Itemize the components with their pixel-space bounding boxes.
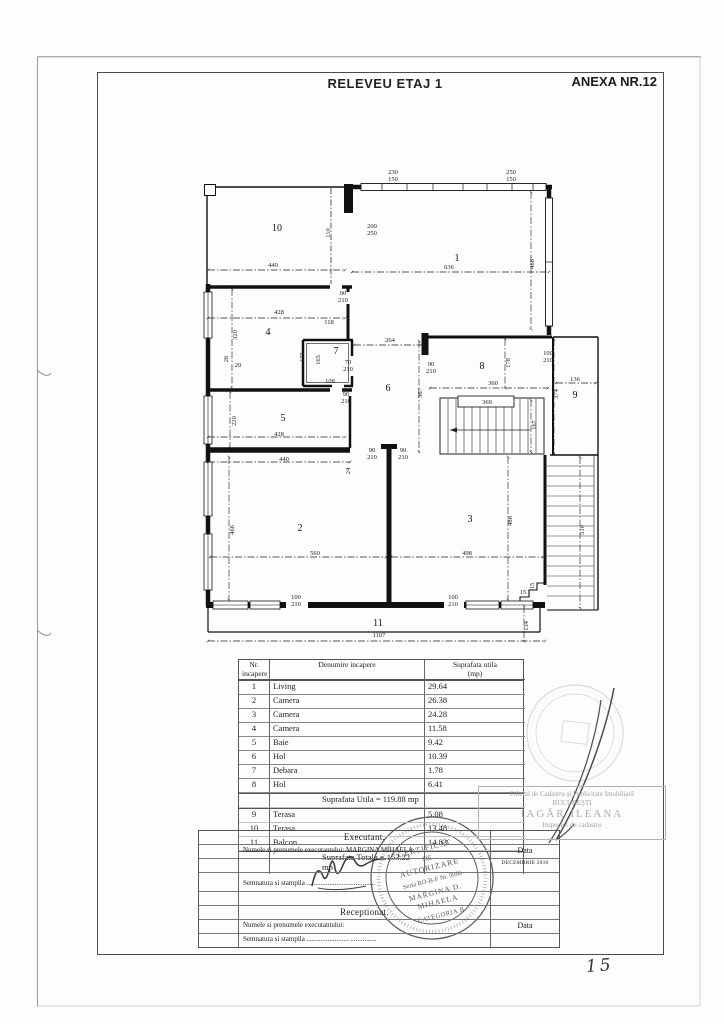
dimension-label: 20 [235,362,242,369]
ocpi-inspector-name: IAGĂR ILEANA [479,808,665,822]
dimension-label: 150 [388,176,398,183]
handwritten-page-number: 15 [585,955,614,977]
dimension-label: 136 [570,376,581,383]
area-cell-nr: 9 [239,809,270,823]
receptionat-header: Receptionat. [239,906,491,920]
dimension-label: 1107 [373,632,387,639]
dimension-label: 560 [310,550,320,557]
data-label-2: Data [491,920,559,934]
stairs-interior [440,396,544,454]
dimension-label: 100 [448,594,458,601]
dimension-label: 90 [369,447,376,454]
area-cell-area: 11.58 [425,723,525,737]
room-number: 11 [373,618,383,629]
dimension-label: 210 [426,368,436,375]
area-cell-nr: 6 [239,751,270,765]
form-row-name1: Numele si prenumele executantului: MARGI… [199,845,559,859]
dimension-label: 210 [341,398,351,405]
header-nr: Nr. incapere [239,660,270,680]
dimension-label: 118 [324,319,334,326]
area-cell-nr: 4 [239,723,270,737]
executant-name: Numele si prenumele executantului: MARGI… [239,845,491,859]
dimension-label: 210 [448,601,458,608]
header-denumire: Denumire incapere [270,660,425,680]
dimension-label: 466 [229,524,236,535]
signature-label-1: Semnatura si stampila ..................… [239,873,491,892]
area-cell-name: Camera [270,709,425,723]
dimension-label: 250 [367,230,377,237]
scanned-page: RELEVEU ETAJ 1 ANEXA NR.12 [0,0,724,1024]
dimension-label: 15 [520,589,527,596]
area-cell-nr: 1 [239,681,270,695]
area-cell-nr: 7 [239,765,270,779]
area-cell-nr: 8 [239,779,270,793]
dimension-label: 320 [232,330,239,340]
dimension-label: 134 [523,620,530,631]
dimension-label: 100 [543,350,553,357]
ocpi-office: Oficiul de Cadastru şi Publicitate Imobi… [479,790,665,799]
dimension-label: 369 [482,399,492,406]
dimension-label: 210 [398,454,408,461]
area-cell-name: Hol [270,751,425,765]
ocpi-inspector-role: Inspector de cadastru [479,821,665,830]
dimension-label: 150 [506,176,516,183]
dimension-label: 250 [506,169,516,176]
area-cell-name: Camera [270,695,425,709]
receptionat-name: Numele si prenumele executantului: [239,920,491,934]
room-number: 7 [334,346,339,357]
form-row-signature2: Semnatura si stampila ..................… [199,934,559,947]
area-cell-area: 29.64 [425,681,525,695]
area-cell-area: 1.78 [425,765,525,779]
dimension-label: 26 [223,355,230,362]
dimension-label: 24 [345,467,352,474]
area-table-header: Nr. incapere Denumire incapere Suprafata… [238,659,524,680]
signature-form: Executant. Numele si prenumele executant… [198,830,560,948]
signature-label-2: Semnatura si stampila ..................… [239,934,491,947]
dimension-label: 175 [299,352,306,362]
dimension-label: 440 [279,456,289,463]
area-cell-nr: 2 [239,695,270,709]
dimension-label: 488 [507,516,514,526]
form-row-date: DECEMBRIE 2010 [199,859,559,873]
area-cell-area: 26.38 [425,695,525,709]
room-number: 10 [272,223,282,234]
area-cell-name: Hol [270,779,425,793]
dimension-label: 264 [385,337,396,344]
form-row-receptionat: Receptionat. [199,906,559,920]
room-number: 4 [266,327,271,338]
form-row-spacer [199,892,559,906]
room-number: 5 [281,413,286,424]
dimension-label: 210 [367,454,377,461]
faint-round-stamp [527,685,623,781]
dimension-label: 374 [553,388,560,399]
dimension-label: 90 [428,361,435,368]
area-cell-name: Baie [270,737,425,751]
dimension-label: 90 [340,290,347,297]
dimension-label: 440 [268,262,278,269]
area-cell-area: 9.42 [425,737,525,751]
area-cell-area: 24.28 [425,709,525,723]
dimension-label: 167 [531,419,538,430]
dimension-label: 90 [343,391,350,398]
room-number: 6 [386,383,391,394]
room-number: 1 [455,253,460,264]
dimension-label: 70 [345,359,352,366]
room-number: 3 [468,514,473,525]
area-table-rows: 1Living29.642Camera26.383Camera24.284Cam… [238,680,524,793]
area-cell-name: Living [270,681,425,695]
data-label-1: Data [491,845,559,859]
dimension-label: 210 [338,297,348,304]
room-number: 8 [480,361,485,372]
area-cell-area: 10.39 [425,751,525,765]
dimension-label: 100 [291,594,301,601]
dimension-label: 210 [543,357,553,364]
area-cell-name: Terasa [270,809,425,823]
dimension-label: 510 [579,525,586,535]
dimension-label: 360 [488,380,498,387]
room-number: 2 [298,523,303,534]
area-cell-name: Debara [270,765,425,779]
dimension-label: 178 [505,358,512,368]
date-value: DECEMBRIE 2010 [491,859,559,873]
form-row-signature1: Semnatura si stampila ..................… [199,873,559,892]
dimension-label: 220 [231,416,238,426]
stairs-exterior [547,455,598,610]
room-number: 9 [573,390,578,401]
dimension-label: 15 [529,583,536,590]
area-cell-name: Camera [270,723,425,737]
dimension-label: 200 [367,223,377,230]
dimension-label: 210 [343,366,353,373]
dimension-label: 498 [462,550,472,557]
subtotal-label: Suprafata Utila = 119.88 mp [270,794,425,808]
ocpi-stamp: Oficiul de Cadastru şi Publicitate Imobi… [478,786,666,840]
dimension-label: 230 [388,169,398,176]
dimension-label: 428 [274,309,284,316]
area-cell-nr: 5 [239,737,270,751]
header-suprafata: Suprafata utila (mp) [425,660,525,680]
dimension-label: 636 [444,264,455,271]
area-cell-nr: 3 [239,709,270,723]
dimension-label: 108 [325,378,335,385]
dimension-label: 90 [400,447,407,454]
form-row-name2: Numele si prenumele executantului: Data [199,920,559,934]
dimension-label: 466 [529,258,536,269]
executant-header: Executant. [239,831,491,845]
ocpi-city: BUCUREŞTI [479,799,665,808]
dimension-label: 367 [417,387,424,398]
dimension-label: 428 [274,431,284,438]
dimension-label: 165 [315,355,322,365]
dimension-label: 110 [325,228,332,238]
dimension-label: 210 [291,601,301,608]
